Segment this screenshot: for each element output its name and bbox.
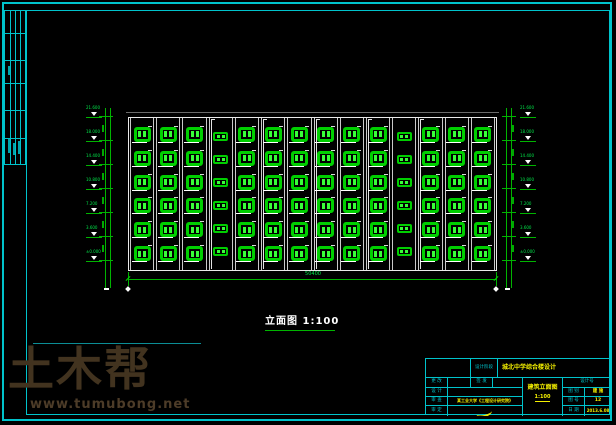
level-marker: 3.600	[86, 228, 104, 238]
level-value: 18.000	[86, 130, 100, 134]
level-line	[520, 165, 536, 166]
level-triangle-icon	[91, 208, 97, 212]
drawing-scale: 1:100	[535, 395, 551, 402]
window-small	[213, 132, 228, 141]
window-pane	[405, 181, 408, 184]
window-pane	[374, 203, 377, 209]
row-label: 设 计	[426, 388, 448, 397]
window-pane	[143, 179, 146, 185]
window-large	[448, 151, 465, 166]
field-label: 图 号	[563, 397, 585, 406]
signature-strip-mark	[18, 141, 21, 154]
window-pane	[432, 155, 435, 161]
window-pane	[248, 251, 251, 257]
chain-foot	[104, 288, 109, 290]
window-large	[160, 175, 177, 190]
window-large	[238, 175, 255, 190]
bay-11	[392, 118, 416, 270]
window-large	[422, 175, 439, 190]
level-marker: ±0.000	[520, 252, 538, 262]
window-large	[474, 175, 491, 190]
window-large	[422, 198, 439, 213]
level-triangle-icon	[525, 184, 531, 188]
row-label: 审 定	[426, 406, 448, 416]
window-pane	[432, 251, 435, 257]
window-large	[317, 175, 334, 190]
title-block-blank	[426, 359, 471, 378]
level-marker: 3.600	[520, 228, 538, 238]
window-pane	[169, 203, 172, 209]
window-pane	[300, 227, 303, 233]
window-pane	[374, 131, 377, 137]
window-pane	[143, 203, 146, 209]
window-pane	[217, 181, 220, 184]
floor-dimension-text	[512, 173, 514, 180]
bay-14	[471, 118, 495, 270]
window-pane	[348, 227, 351, 233]
row-blank	[448, 378, 471, 388]
window-pane	[484, 131, 487, 137]
level-line	[86, 261, 102, 262]
window-pane	[295, 179, 298, 185]
window-pane	[427, 131, 430, 137]
window-pane	[295, 203, 298, 209]
watermark-brand: 土木帮	[8, 342, 152, 396]
window-pane	[453, 155, 456, 161]
window-large	[291, 127, 308, 142]
window-pane	[248, 155, 251, 161]
bay-7	[287, 118, 311, 270]
floor-dimension-text	[102, 221, 104, 228]
level-line	[86, 165, 102, 166]
level-triangle-icon	[525, 232, 531, 236]
window-pane	[322, 203, 325, 209]
window-pane	[400, 250, 403, 253]
window-large	[474, 222, 491, 237]
window-pane	[327, 227, 330, 233]
stage-label: 设计阶段	[471, 359, 498, 378]
window-pane	[327, 179, 330, 185]
level-marker: 21.600	[86, 108, 104, 118]
window-pane	[269, 227, 272, 233]
level-value: ±0.000	[86, 250, 101, 254]
window-pane	[432, 179, 435, 185]
window-pane	[374, 251, 377, 257]
level-line	[86, 117, 102, 118]
level-triangle-icon	[525, 208, 531, 212]
window-pane	[458, 155, 461, 161]
window-large	[422, 127, 439, 142]
window-pane	[274, 131, 277, 137]
window-pane	[191, 155, 194, 161]
field-value: 12	[585, 397, 611, 406]
window-pane	[295, 155, 298, 161]
window-pane	[164, 203, 167, 209]
window-pane	[169, 251, 172, 257]
window-pane	[164, 131, 167, 137]
window-pane	[143, 227, 146, 233]
level-tick	[502, 260, 516, 261]
level-value: 18.000	[520, 130, 534, 134]
window-small	[213, 247, 228, 256]
window-large	[317, 246, 334, 261]
window-large	[291, 246, 308, 261]
window-large	[160, 127, 177, 142]
window-pane	[427, 179, 430, 185]
window-pane	[169, 227, 172, 233]
window-pane	[432, 131, 435, 137]
window-pane	[164, 227, 167, 233]
level-value: 21.600	[520, 106, 534, 110]
window-small	[397, 155, 412, 164]
window-large	[134, 246, 151, 261]
level-line	[86, 189, 102, 190]
level-value: 3.600	[86, 226, 97, 230]
window-pane	[248, 179, 251, 185]
window-pane	[274, 251, 277, 257]
signature-strip-divider	[5, 60, 25, 61]
floor-dimension-text	[102, 245, 104, 252]
window-large	[186, 246, 203, 261]
window-pane	[243, 227, 246, 233]
row-blank	[448, 388, 523, 397]
window-large	[186, 151, 203, 166]
parapet-line	[126, 112, 499, 113]
window-pane	[295, 251, 298, 257]
signature-strip-mark	[13, 143, 16, 155]
window-small	[397, 201, 412, 210]
window-large	[422, 151, 439, 166]
window-pane	[322, 131, 325, 137]
window-pane	[269, 155, 272, 161]
level-tick	[502, 164, 516, 165]
window-small	[397, 224, 412, 233]
window-pane	[427, 251, 430, 257]
window-pane	[353, 179, 356, 185]
watermark-url: www.tumubong.net	[30, 397, 190, 412]
window-pane	[138, 227, 141, 233]
window-pane	[405, 227, 408, 230]
window-pane	[353, 155, 356, 161]
window-large	[186, 198, 203, 213]
window-pane	[222, 135, 225, 138]
level-tick	[502, 116, 516, 117]
window-pane	[269, 131, 272, 137]
drawing-name-cell: 建筑立面图 1:100	[523, 378, 563, 416]
window-large	[370, 127, 387, 142]
window-pane	[479, 251, 482, 257]
level-line	[520, 237, 536, 238]
window-pane	[400, 227, 403, 230]
window-pane	[348, 251, 351, 257]
row-label: 审 查	[426, 397, 448, 406]
window-large	[238, 198, 255, 213]
row-label: 更 改	[426, 378, 448, 388]
window-pane	[484, 227, 487, 233]
window-pane	[379, 179, 382, 185]
window-pane	[400, 181, 403, 184]
institute-name: 某工业大学《工程设计研究院》	[448, 397, 523, 406]
window-pane	[348, 203, 351, 209]
signature-strip-divider	[5, 83, 25, 84]
level-value: 10.800	[86, 178, 100, 182]
bay-5	[235, 118, 259, 270]
level-marker: ±0.000	[86, 252, 104, 262]
window-large	[474, 127, 491, 142]
floor-dimension-text	[512, 125, 514, 132]
level-triangle-icon	[91, 112, 97, 116]
level-marker: 7.200	[86, 204, 104, 214]
window-large	[448, 222, 465, 237]
floor-dimension-text	[102, 125, 104, 132]
bay-2	[156, 118, 180, 270]
window-pane	[138, 203, 141, 209]
window-pane	[453, 179, 456, 185]
window-pane	[191, 227, 194, 233]
window-large	[317, 222, 334, 237]
window-small	[397, 247, 412, 256]
level-triangle-icon	[91, 256, 97, 260]
window-large	[238, 127, 255, 142]
bay-6	[261, 118, 285, 270]
window-large	[238, 246, 255, 261]
window-pane	[379, 251, 382, 257]
level-value: 7.200	[86, 202, 97, 206]
bay-3	[182, 118, 206, 270]
window-large	[370, 175, 387, 190]
window-large	[291, 198, 308, 213]
window-pane	[432, 203, 435, 209]
signature-strip-mark	[8, 66, 11, 75]
window-pane	[143, 131, 146, 137]
window-large	[317, 198, 334, 213]
window-pane	[196, 227, 199, 233]
level-value: 14.400	[86, 154, 100, 158]
floor-dimension-text	[102, 173, 104, 180]
window-large	[265, 127, 282, 142]
window-large	[474, 151, 491, 166]
design-no-label: 设计号	[563, 378, 611, 388]
window-pane	[300, 251, 303, 257]
level-line	[520, 261, 536, 262]
window-pane	[327, 155, 330, 161]
window-pane	[453, 227, 456, 233]
level-triangle-icon	[91, 136, 97, 140]
window-pane	[379, 155, 382, 161]
level-triangle-icon	[525, 256, 531, 260]
window-pane	[138, 155, 141, 161]
window-pane	[353, 227, 356, 233]
window-pane	[217, 158, 220, 161]
level-marker: 18.000	[86, 132, 104, 142]
window-large	[160, 198, 177, 213]
window-pane	[222, 250, 225, 253]
window-large	[134, 127, 151, 142]
signature-strip	[4, 10, 26, 165]
floor-dimension-text	[102, 149, 104, 156]
window-large	[448, 127, 465, 142]
window-large	[160, 151, 177, 166]
window-pane	[169, 155, 172, 161]
window-pane	[274, 203, 277, 209]
drawing-name: 建筑立面图	[527, 385, 557, 391]
floor-dimension-text	[102, 197, 104, 204]
level-tick	[502, 140, 516, 141]
window-pane	[243, 179, 246, 185]
window-pane	[400, 158, 403, 161]
window-large	[160, 222, 177, 237]
level-triangle-icon	[525, 160, 531, 164]
cad-sheet: 21.60018.00014.40010.8007.2003.600±0.000…	[0, 0, 616, 425]
window-pane	[164, 179, 167, 185]
window-pane	[453, 131, 456, 137]
window-pane	[169, 179, 172, 185]
window-large	[160, 246, 177, 261]
window-pane	[169, 131, 172, 137]
window-large	[343, 246, 360, 261]
window-pane	[248, 131, 251, 137]
window-pane	[348, 155, 351, 161]
window-pane	[400, 204, 403, 207]
window-large	[317, 127, 334, 142]
window-large	[265, 246, 282, 261]
bay-1	[130, 118, 154, 270]
window-pane	[458, 251, 461, 257]
window-pane	[322, 227, 325, 233]
level-value: 7.200	[520, 202, 531, 206]
window-large	[343, 175, 360, 190]
window-pane	[458, 131, 461, 137]
window-pane	[143, 251, 146, 257]
window-pane	[300, 131, 303, 137]
rain-pipe	[211, 119, 212, 269]
window-large	[238, 222, 255, 237]
floor-dimension-text	[512, 221, 514, 228]
bay-4	[209, 118, 233, 270]
window-pane	[453, 203, 456, 209]
window-large	[291, 151, 308, 166]
field-value: 2013.6.08	[585, 406, 611, 416]
window-large	[317, 151, 334, 166]
window-pane	[405, 204, 408, 207]
level-chain-right: 21.60018.00014.40010.8007.2003.600±0.000	[497, 100, 537, 300]
level-tick	[502, 236, 516, 237]
window-pane	[458, 227, 461, 233]
level-chain-left: 21.60018.00014.40010.8007.2003.600±0.000	[88, 100, 128, 300]
window-pane	[191, 179, 194, 185]
window-pane	[243, 203, 246, 209]
window-pane	[405, 158, 408, 161]
floor-dimension-text	[512, 197, 514, 204]
window-pane	[269, 203, 272, 209]
window-pane	[479, 203, 482, 209]
level-value: ±0.000	[520, 250, 535, 254]
window-pane	[196, 179, 199, 185]
window-small	[213, 178, 228, 187]
window-pane	[327, 131, 330, 137]
window-large	[343, 127, 360, 142]
window-small	[213, 224, 228, 233]
signature-strip-divider	[5, 110, 25, 111]
bay-8	[314, 118, 338, 270]
window-pane	[427, 227, 430, 233]
window-pane	[222, 227, 225, 230]
window-large	[265, 175, 282, 190]
level-marker: 14.400	[520, 156, 538, 166]
window-pane	[274, 227, 277, 233]
window-large	[448, 198, 465, 213]
window-large	[474, 198, 491, 213]
window-large	[238, 151, 255, 166]
window-large	[265, 151, 282, 166]
window-pane	[453, 251, 456, 257]
window-large	[134, 222, 151, 237]
floor-dimension-text	[512, 245, 514, 252]
window-pane	[400, 135, 403, 138]
signature-cell	[448, 406, 523, 416]
window-small	[397, 132, 412, 141]
window-large	[422, 222, 439, 237]
window-pane	[484, 155, 487, 161]
window-pane	[479, 179, 482, 185]
window-pane	[458, 179, 461, 185]
total-dimension-line	[128, 279, 497, 280]
window-pane	[138, 179, 141, 185]
window-small	[397, 178, 412, 187]
window-pane	[379, 227, 382, 233]
title-block: 设计阶段 城北中学综合楼设计 更 改 签 发 设 计 审 查 某工业大学《工程设…	[425, 358, 610, 415]
window-pane	[322, 179, 325, 185]
window-pane	[327, 251, 330, 257]
window-pane	[458, 203, 461, 209]
total-dimension-text: 50400	[285, 272, 341, 277]
window-large	[186, 127, 203, 142]
bay-10	[366, 118, 390, 270]
window-pane	[379, 131, 382, 137]
window-pane	[432, 227, 435, 233]
window-pane	[374, 155, 377, 161]
window-large	[291, 222, 308, 237]
window-pane	[217, 250, 220, 253]
window-pane	[248, 227, 251, 233]
bay-9	[340, 118, 364, 270]
level-marker: 21.600	[520, 108, 538, 118]
window-pane	[405, 135, 408, 138]
window-pane	[348, 179, 351, 185]
level-triangle-icon	[525, 112, 531, 116]
window-pane	[274, 179, 277, 185]
window-pane	[348, 131, 351, 137]
window-large	[134, 151, 151, 166]
window-pane	[191, 251, 194, 257]
level-line	[86, 213, 102, 214]
window-pane	[191, 203, 194, 209]
dimension-chain	[105, 108, 111, 288]
window-pane	[322, 155, 325, 161]
level-line	[86, 141, 102, 142]
window-pane	[217, 204, 220, 207]
level-line	[520, 117, 536, 118]
window-pane	[300, 203, 303, 209]
window-pane	[269, 251, 272, 257]
window-large	[422, 246, 439, 261]
window-pane	[479, 155, 482, 161]
window-pane	[143, 155, 146, 161]
window-pane	[295, 131, 298, 137]
level-value: 3.600	[520, 226, 531, 230]
window-large	[448, 246, 465, 261]
window-pane	[196, 131, 199, 137]
